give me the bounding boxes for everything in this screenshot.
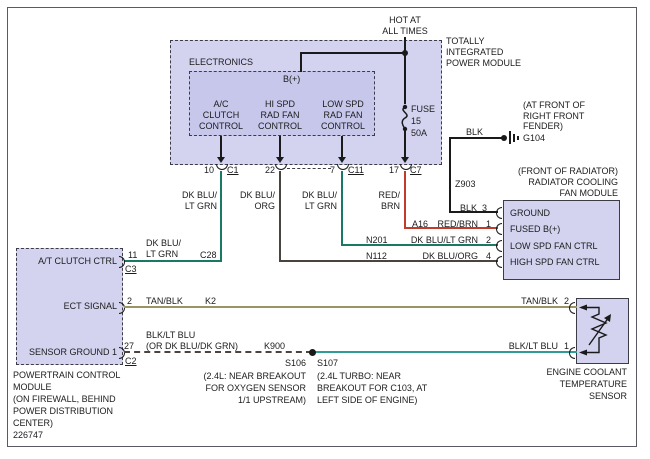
- sensor-pin2-connector-icon: [569, 302, 575, 314]
- pcm-caption: POWERTRAIN CONTROL MODULE (ON FIREWALL, …: [13, 369, 120, 429]
- bplus-branch-wire-h: [300, 52, 406, 54]
- low-ctrl-arrow-icon: [338, 157, 346, 163]
- wire-hi-spd-vertical: [279, 171, 281, 262]
- splice-s107-label: S107: [317, 358, 338, 369]
- n201-circuit-label: N201: [366, 235, 388, 246]
- splice-s107-note: (2.4L TURBO: NEAR BREAKOUT FOR C103, AT …: [317, 370, 427, 406]
- ground-symbol-bar2: [513, 134, 515, 142]
- fuse-output-wire: [404, 130, 406, 157]
- fan-pin3-label: 3: [482, 203, 487, 214]
- a16-circuit-label: A16: [412, 219, 428, 230]
- fan-pin4-connector-icon: [496, 256, 502, 268]
- wire-fused-b-vertical: [404, 171, 406, 229]
- connector-c1-label: C1: [227, 165, 239, 176]
- fan-row-low-spd: LOW SPD FAN CTRL: [510, 241, 598, 252]
- pin-7-label: 7: [325, 165, 335, 176]
- dkblu-org-wire-label: DK BLU/ORG: [408, 251, 478, 262]
- hot-feed-wire: [404, 37, 406, 104]
- sensor-caption: ENGINE COOLANT TEMPERATURE SENSOR: [520, 366, 627, 402]
- ground-symbol-bar3: [517, 136, 519, 140]
- hi-ctrl-arrow-line: [279, 136, 281, 157]
- hi-ctrl-arrow-icon: [276, 157, 284, 163]
- ac-ctrl-arrow-icon: [217, 157, 225, 163]
- fan-pin2-label: 2: [486, 235, 491, 246]
- tipm-title: TOTALLY INTEGRATED POWER MODULE: [446, 36, 521, 69]
- fan-pin1-connector-icon: [496, 223, 502, 235]
- control-hi-spd-fan-label: HI SPD RAD FAN CONTROL: [250, 99, 310, 132]
- g104-dot: [501, 135, 507, 141]
- connector-c3-label: C3: [125, 264, 137, 275]
- thermistor-icon: [577, 298, 626, 362]
- fuse-arrow-icon: [401, 157, 409, 163]
- fan-row-ground: GROUND: [510, 208, 550, 219]
- n112-circuit-label: N112: [366, 251, 387, 262]
- blkltblu-right-label: BLK/LT BLU: [488, 341, 558, 352]
- wire7-color-label: DK BLU/ LT GRN: [280, 190, 337, 212]
- low-ctrl-arrow-line: [341, 136, 343, 157]
- wire-ground-vertical: [449, 137, 451, 213]
- splice-s106-note: (2.4L: NEAR BREAKOUT FOR OXYGEN SENSOR 1…: [186, 370, 306, 406]
- tanblk-right-label: TAN/BLK: [498, 296, 558, 307]
- connector-c11-label: C11: [348, 165, 364, 176]
- wire-ac-clutch-vertical: [220, 171, 222, 262]
- fuse-label: FUSE 15 50A: [411, 103, 435, 139]
- control-low-spd-fan-label: LOW SPD RAD FAN CONTROL: [312, 99, 374, 132]
- fan-module-note: (FRONT OF RADIATOR) RADIATOR COOLING FAN…: [500, 166, 618, 199]
- g104-location-note: (AT FRONT OF RIGHT FRONT FENDER): [523, 100, 585, 132]
- pcm-pin11-label: 11: [128, 250, 137, 261]
- wire17-color-label: RED/ BRN: [352, 190, 400, 212]
- bplus-label: B(+): [283, 74, 300, 85]
- at-wire-color-label: DK BLU/ LT GRN: [146, 238, 181, 260]
- pin-10-label: 10: [198, 165, 214, 176]
- ac-ctrl-arrow-line: [220, 136, 222, 157]
- ground-symbol-icon: [509, 131, 511, 144]
- fan-pin4-label: 4: [486, 251, 491, 262]
- blk-pin3-wire-label: BLK: [430, 203, 477, 214]
- pin-22-label: 22: [259, 165, 275, 176]
- electronics-label: ELECTRONICS: [189, 57, 253, 68]
- connector-c7-label: C7: [410, 165, 422, 176]
- fan-row-high-spd: HIGH SPD FAN CTRL: [510, 257, 600, 268]
- pcm-ref-number: 226747: [13, 430, 43, 441]
- pcm-row-at-clutch: A/T CLUTCH CTRL: [18, 256, 117, 267]
- bplus-branch-wire-v: [300, 52, 302, 72]
- pcm-row-ect-signal: ECT SIGNAL: [18, 301, 117, 312]
- z903-label: Z903: [455, 179, 476, 190]
- c28-connector-label: C28: [200, 250, 217, 261]
- fan-pin1-label: 1: [486, 219, 491, 230]
- connector-c2-label: C2: [125, 356, 137, 367]
- fan-row-fused-b: FUSED B(+): [510, 224, 560, 235]
- pin-17-label: 17: [383, 165, 399, 176]
- fan-pin3-connector-icon: [496, 207, 502, 219]
- blk-top-label: BLK: [466, 127, 483, 138]
- bplus-junction-dot: [402, 50, 408, 56]
- control-ac-clutch-label: A/C CLUTCH CONTROL: [191, 99, 251, 132]
- wire-k900-dashed: [124, 351, 312, 353]
- g104-label: G104: [523, 133, 545, 144]
- hot-at-all-times-label: HOT AT ALL TIMES: [368, 15, 442, 37]
- wire22-color-label: DK BLU/ ORG: [219, 190, 275, 212]
- sensor-pin1-connector-icon: [569, 347, 575, 359]
- blkltblu-left-label: BLK/LT BLU: [146, 330, 195, 341]
- dkblu-ltgrn-wire-label: DK BLU/LT GRN: [408, 235, 478, 246]
- wire10-color-label: DK BLU/ LT GRN: [160, 190, 217, 212]
- wiring-diagram: HOT AT ALL TIMES TOTALLY INTEGRATED POWE…: [0, 0, 650, 459]
- splice-s106-label: S106: [269, 358, 306, 369]
- redbrn-wire-label: RED/BRN: [430, 219, 478, 230]
- splice-dot: [309, 349, 316, 356]
- fan-pin2-connector-icon: [496, 240, 502, 252]
- wire-low-spd-vertical: [341, 171, 343, 246]
- pcm-row-sensor-ground: SENSOR GROUND 1: [18, 347, 117, 358]
